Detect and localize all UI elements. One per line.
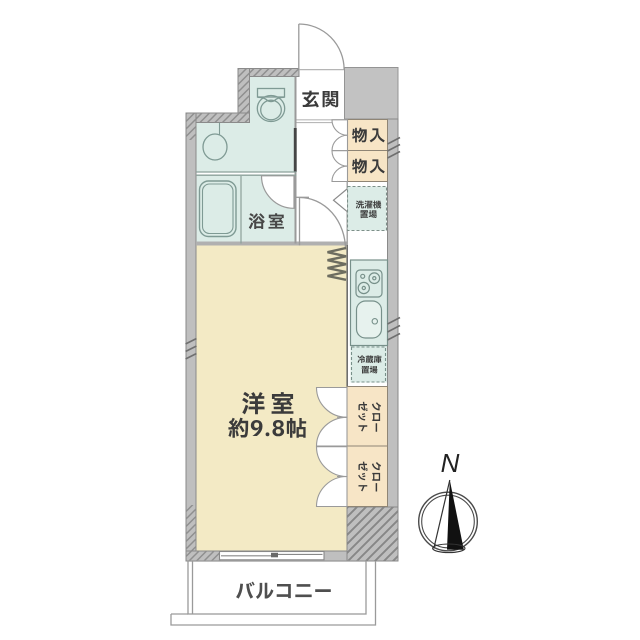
svg-text:N: N <box>441 448 460 478</box>
